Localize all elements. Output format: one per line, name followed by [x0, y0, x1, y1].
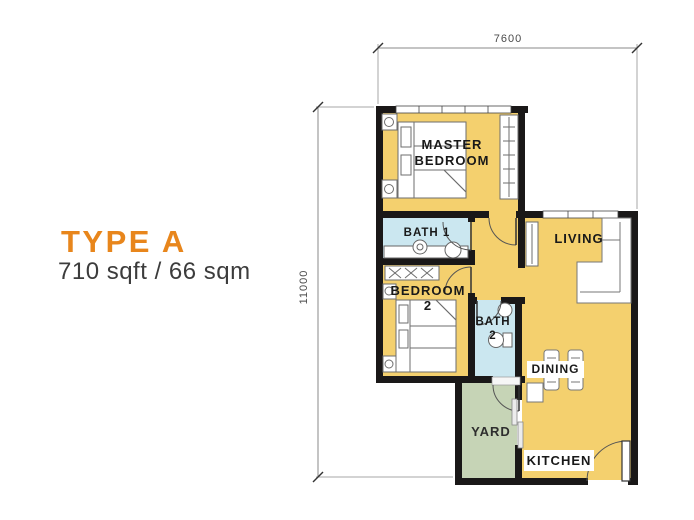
room-living-dining-kitchen [522, 214, 633, 480]
dimension-width-label: 7600 [478, 33, 538, 45]
wall-top [376, 106, 528, 113]
wall-left [376, 106, 383, 383]
wall-bath1-bottom [376, 258, 475, 265]
wall-bedroom2-right-stub [468, 258, 475, 265]
room-label-bedroom-2: BEDROOM 2 [386, 283, 470, 313]
master-bedroom-label-line2: BEDROOM [398, 153, 506, 169]
master-bedroom-label-line1: MASTER [398, 137, 506, 153]
dimension-height-label: 11000 [298, 257, 310, 317]
wall-yard-right-lower [515, 445, 522, 478]
wall-bedroom2-bottom [376, 376, 493, 383]
wall-bottom-right [628, 478, 638, 485]
room-label-bath-2: BATH 2 [472, 315, 514, 343]
bath2-label-line1: BATH [472, 315, 514, 329]
wall-yard-top-right [519, 376, 525, 383]
unit-type-title: TYPE A [61, 224, 187, 260]
floorplan-page: TYPE A 710 sqft / 66 sqm [0, 0, 694, 520]
room-label-master-bedroom: MASTER BEDROOM [398, 137, 506, 169]
wall-bath2-yard-right-upper [515, 297, 522, 400]
bedroom2-label-line1: BEDROOM [386, 283, 470, 298]
wall-yard-left [455, 376, 462, 478]
room-label-yard: YARD [466, 424, 516, 439]
room-label-dining: DINING [527, 361, 584, 378]
room-label-kitchen: KITCHEN [524, 450, 594, 471]
wall-master-right [518, 106, 525, 268]
wall-bath1-right-top [468, 211, 475, 222]
room-bedroom-2 [380, 258, 471, 380]
wall-bottom-left [455, 478, 588, 485]
bedroom2-label-line2: 2 [386, 298, 470, 313]
room-label-bath-1: BATH 1 [396, 226, 458, 241]
wall-bath1-right-bottom [468, 250, 475, 258]
wall-living-top [516, 211, 638, 218]
room-label-living: LIVING [546, 231, 612, 246]
unit-area-subtitle: 710 sqft / 66 sqm [58, 258, 251, 286]
wall-right [631, 211, 638, 485]
bath2-label-line2: 2 [472, 329, 514, 343]
